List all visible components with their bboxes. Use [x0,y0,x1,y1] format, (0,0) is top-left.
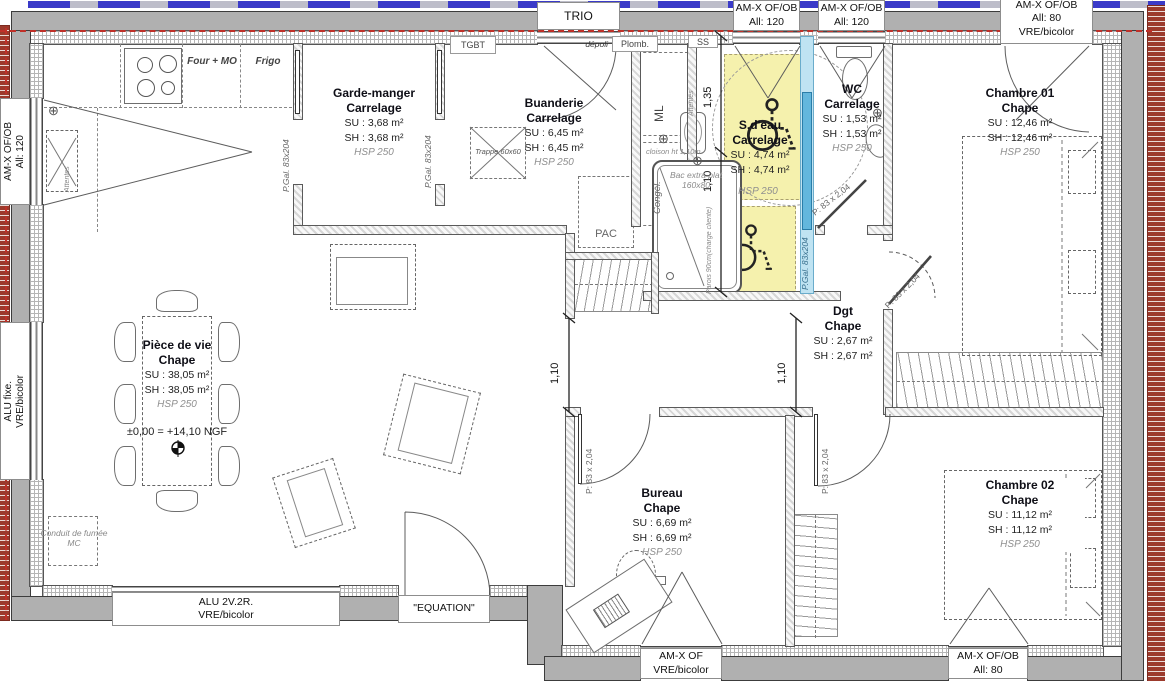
room-finish: Chape [608,501,716,516]
room-name: Chambre 01 [950,86,1090,101]
flue-label-line2: MC [36,538,112,548]
room-finish: Carrelage [502,111,606,126]
room-su: SU : 6,69 m² [608,516,716,531]
trio-note: dépoli [564,39,608,49]
dimension-lines [563,31,802,417]
shower-panel-label: Parois 90cm(charge cliente) [706,198,717,294]
setback-line-horizontal [0,30,1152,32]
window-label: VRE/bicolor [1019,26,1074,39]
room-finish: Carrelage [716,133,804,148]
room-label-buanderie: Buanderie Carrelage SU : 6,45 m² SH : 6,… [502,96,606,170]
plumbing-box: Plomb. [612,36,658,52]
room-name: S.d'eau [716,118,804,133]
room-label-sdeau: S.d'eau Carrelage SU : 4,74 m² SH : 4,74… [716,118,804,177]
window-label: VRE/bicolor [653,664,708,677]
window-glazing [733,31,800,44]
window-label: All: 80 [1032,12,1061,25]
room-finish: Chape [950,101,1090,116]
room-finish: Carrelage [326,101,422,116]
window-label: AM-X OF/OB [1016,0,1078,12]
room-su: SU : 11,12 m² [955,508,1085,523]
dimension-110-living: 1,10 [549,342,564,384]
flue-label: Conduit de fumée MC [36,528,112,548]
entry-door-equation: "EQUATION" [398,595,490,623]
room-su: SU : 12,46 m² [950,116,1090,131]
room-name: Pièce de vie [118,338,236,353]
window-bottom-1: ALU 2V.2R. VRE/bicolor [112,592,340,626]
window-left-2: ALU fixe. VRE/bicolor [0,322,30,480]
room-name: Dgt [804,304,882,319]
room-su: SU : 1,53 m² [814,112,890,127]
window-top-1: AM-X OF/OB All: 120 [733,0,800,31]
heat-pump-label: PAC [578,228,634,240]
room-hsp: HSP 250 [326,145,422,160]
room-label-piece-de-vie: Pièce de vie Chape SU : 38,05 m² SH : 38… [118,338,236,412]
window-left-1: AM-X OF/OB All: 120 [0,98,30,205]
room-sh: SH : 6,69 m² [608,531,716,546]
room-sh: SH : 38,05 m² [118,383,236,398]
dimension-135: 1,35 [702,66,717,108]
room-label-bureau: Bureau Chape SU : 6,69 m² SH : 6,69 m² H… [608,486,716,560]
window-label: AM-X OF [659,650,703,663]
room-sh: SH : 2,67 m² [804,349,882,364]
entry-door-label: "EQUATION" [413,602,475,615]
room-finish: Chape [118,353,236,368]
window-glazing [30,98,43,205]
door-label-buanderie: P.Gal. 83x204 [423,108,436,188]
door-label-bureau: P: 83 x 2,04 [584,418,597,494]
entry-door-trio: TRIO [537,2,620,30]
room-su: SU : 6,45 m² [502,126,606,141]
shower-label-line2: 160x80 [652,180,740,190]
room-hsp: HSP 250 [608,545,716,560]
window-label: All: 120 [834,16,869,29]
window-bottom-2: AM-X OF VRE/bicolor [640,648,722,679]
room-su: SU : 4,74 m² [716,148,804,163]
window-label: All: 120 [749,16,784,29]
room-hsp: HSP 250 [950,145,1090,160]
room-name: Buanderie [502,96,606,111]
shower-label-line1: Bac extra plat [652,170,740,180]
level-annotation: ±0,00 = +14,10 NGF [108,426,246,438]
flue-label-line1: Conduit de fumée [36,528,112,538]
floor-plan: Four + MO Frigo Attentes Conduit de fumé… [0,0,1165,681]
room-su: SU : 2,67 m² [804,334,882,349]
room-name: WC [814,82,890,97]
room-hsp: HSP 250 [814,141,890,156]
window-label: VRE/bicolor [198,609,253,622]
room-hsp: HSP 250 [955,537,1085,552]
room-name: Garde-manger [326,86,422,101]
room-label-chambre01: Chambre 01 Chape SU : 12,46 m² SH : 12,4… [950,86,1090,160]
window-label: All: 80 [973,664,1002,677]
room-hsp: HSP 250 [118,397,236,412]
window-label: AM-X OF/OB [736,2,798,15]
door-label-garde-manger: P.Gal. 83x204 [281,112,294,192]
room-finish: Chape [955,493,1085,508]
room-label-garde-manger: Garde-manger Carrelage SU : 3,68 m² SH :… [326,86,422,160]
room-finish: Carrelage [814,97,890,112]
room-su: SU : 3,68 m² [326,116,422,131]
room-finish: Chape [804,319,882,334]
window-glazing [818,31,885,44]
room-label-wc: WC Carrelage SU : 1,53 m² SH : 1,53 m² H… [814,82,890,156]
washing-machine-label: ML [652,68,672,122]
room-label-chambre02: Chambre 02 Chape SU : 11,12 m² SH : 11,1… [955,478,1085,552]
attentes-label: Attentes [64,146,75,192]
oven-label: Four + MO [184,56,240,67]
room-name: Chambre 02 [955,478,1085,493]
sliding-door-label: P.Gal. 83x204 [800,208,813,290]
electrical-panel: TGBT [450,36,496,54]
room-hsp: HSP 250 [502,155,606,170]
room-sh: SH : 1,53 m² [814,127,890,142]
shower-label: Bac extra plat 160x80 [652,170,740,190]
room-label-dgt: Dgt Chape SU : 2,67 m² SH : 2,67 m² [804,304,882,363]
window-bottom-3: AM-X OF/OB All: 80 [948,648,1028,679]
window-top-3: AM-X OF/OB All: 80 VRE/bicolor [1000,0,1093,44]
low-wall-label: cloison ht 1,10m [646,147,722,156]
room-sh: SH : 3,68 m² [326,131,422,146]
window-top-2: AM-X OF/OB All: 120 [818,0,885,31]
attic-hatch-label: Trappe 60x60 [466,147,530,156]
window-label: AM-X OF/OB [957,650,1019,663]
ss-box: SS [688,35,718,48]
window-label: AM-X OF/OB [3,122,16,181]
level-marker-icon [170,440,186,457]
window-glazing [30,322,43,480]
room-name: Bureau [608,486,716,501]
fridge-label: Frigo [244,56,292,67]
trio-label: TRIO [564,9,593,24]
window-label: ALU fixe. [3,381,16,422]
window-label: VRE/bicolor [15,375,28,428]
room-su: SU : 38,05 m² [118,368,236,383]
room-sh: SH : 11,12 m² [955,523,1085,538]
dimension-110-dgt: 1,10 [776,342,791,384]
attentes-label: Attentes [688,74,698,116]
door-label-chambre02: P: 83 x 2,04 [820,418,833,494]
window-label: All: 120 [15,135,28,168]
window-label: AM-X OF/OB [821,2,883,15]
room-sh: SH : 12,46 m² [950,131,1090,146]
window-label: ALU 2V.2R. [199,596,253,609]
